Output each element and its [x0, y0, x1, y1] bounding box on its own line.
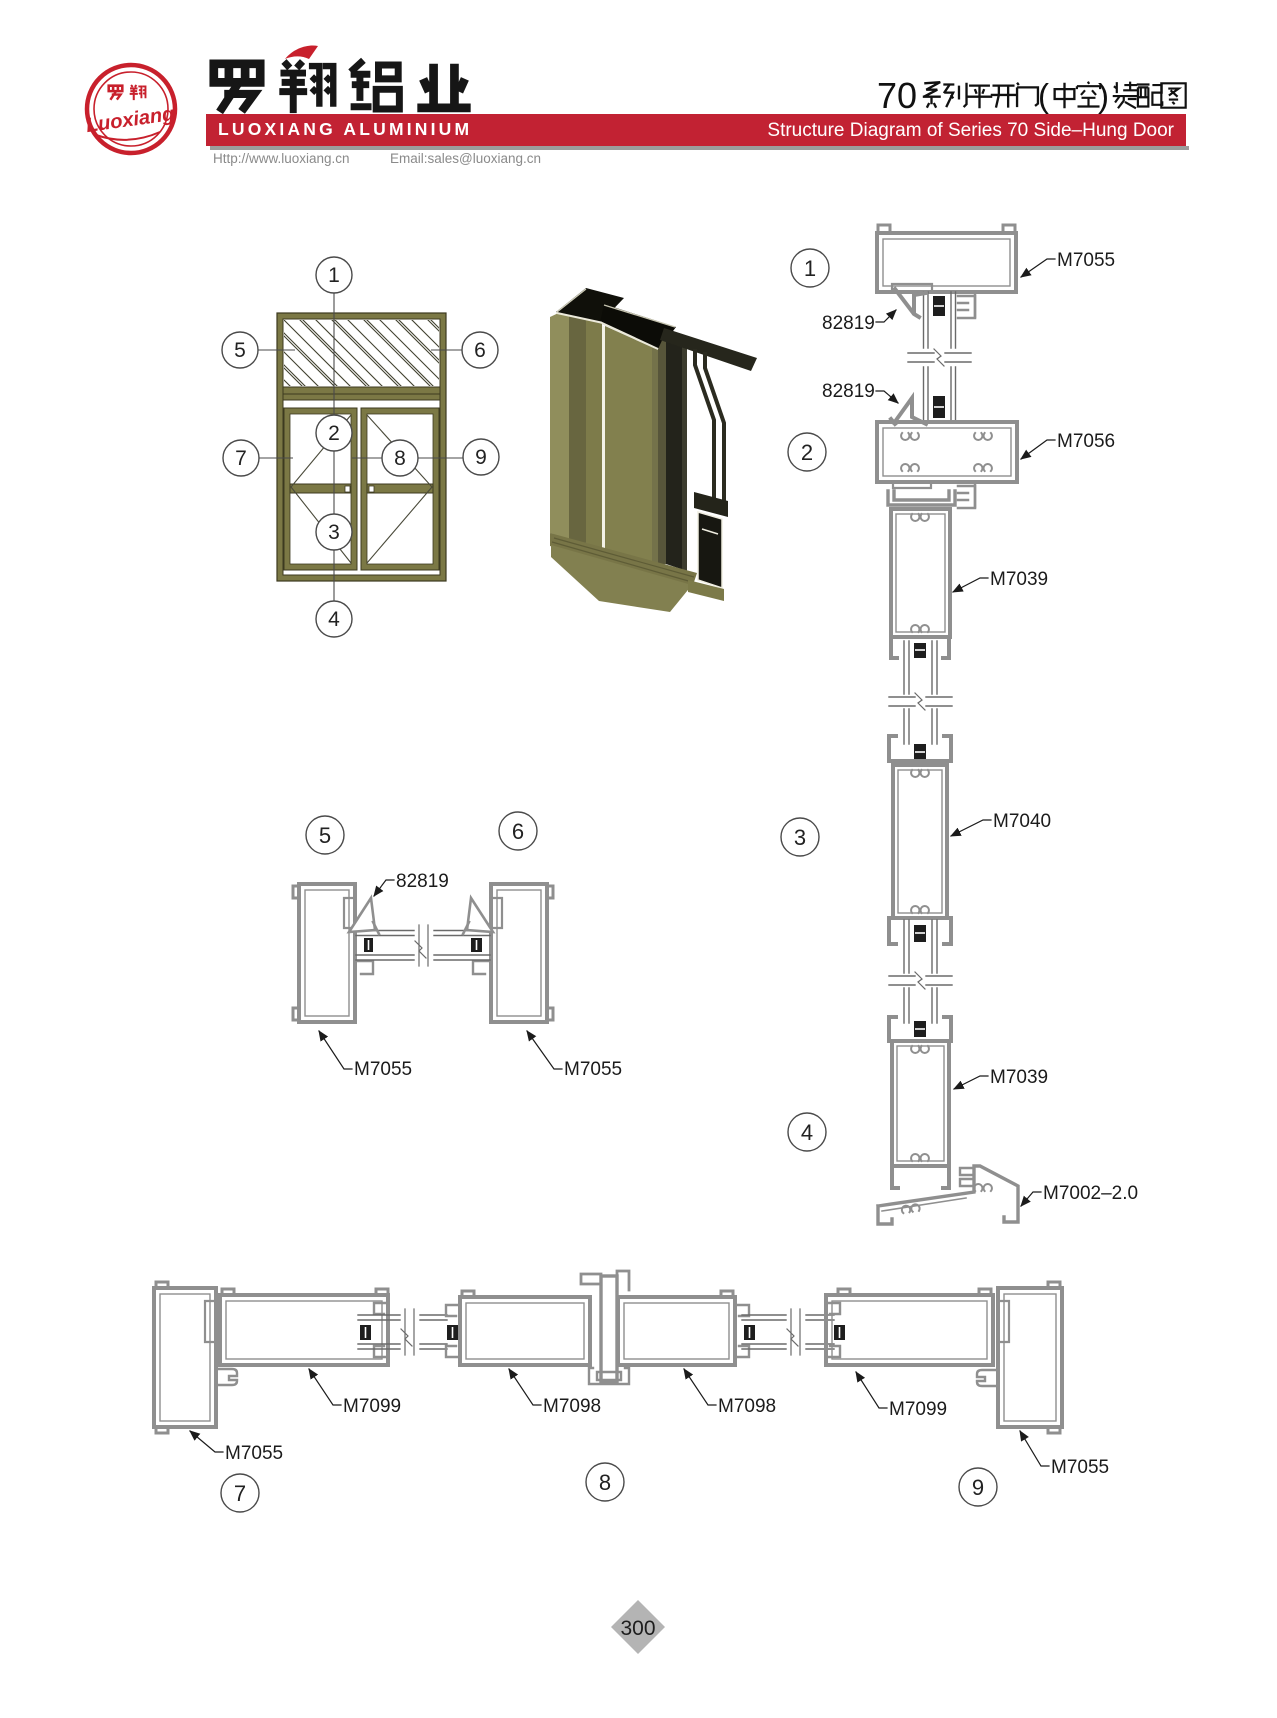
- svg-text:70: 70: [877, 75, 917, 116]
- svg-text:M7055: M7055: [1057, 250, 1115, 271]
- svg-text:82819: 82819: [396, 871, 449, 892]
- svg-text:1: 1: [804, 256, 816, 281]
- svg-text:M7098: M7098: [543, 1396, 601, 1417]
- svg-text:2: 2: [328, 422, 340, 445]
- svg-text:82819: 82819: [822, 313, 875, 334]
- svg-text:8: 8: [599, 1470, 611, 1495]
- svg-text:82819: 82819: [822, 381, 875, 402]
- svg-text:Luoxiang: Luoxiang: [85, 103, 176, 137]
- svg-text:(: (: [1038, 77, 1049, 114]
- svg-text:M7055: M7055: [564, 1059, 622, 1080]
- svg-text:6: 6: [512, 819, 524, 844]
- svg-text:Email:sales@luoxiang.cn: Email:sales@luoxiang.cn: [390, 151, 541, 166]
- svg-text:M7039: M7039: [990, 569, 1048, 590]
- svg-text:8: 8: [394, 447, 406, 470]
- svg-text:300: 300: [620, 1617, 655, 1640]
- svg-text:M7055: M7055: [354, 1059, 412, 1080]
- svg-text:3: 3: [794, 825, 806, 850]
- svg-text:): ): [1098, 77, 1109, 114]
- svg-text:M7055: M7055: [1051, 1457, 1109, 1478]
- svg-text:M7040: M7040: [993, 811, 1051, 832]
- svg-text:M7099: M7099: [889, 1399, 947, 1420]
- svg-text:M7039: M7039: [990, 1067, 1048, 1088]
- svg-text:7: 7: [235, 447, 247, 470]
- svg-text:LUOXIANG ALUMINIUM: LUOXIANG ALUMINIUM: [218, 119, 472, 139]
- svg-text:Http://www.luoxiang.cn: Http://www.luoxiang.cn: [213, 151, 350, 166]
- svg-text:5: 5: [319, 823, 331, 848]
- svg-text:5: 5: [234, 339, 246, 362]
- svg-text:2: 2: [801, 440, 813, 465]
- svg-text:M7002–2.0: M7002–2.0: [1043, 1183, 1138, 1204]
- svg-text:M7056: M7056: [1057, 431, 1115, 452]
- svg-text:M7098: M7098: [718, 1396, 776, 1417]
- svg-text:3: 3: [328, 521, 340, 544]
- svg-text:7: 7: [234, 1481, 246, 1506]
- svg-text:9: 9: [972, 1475, 984, 1500]
- svg-text:M7099: M7099: [343, 1396, 401, 1417]
- svg-text:1: 1: [328, 264, 340, 287]
- svg-text:Structure Diagram of Series 70: Structure Diagram of Series 70 Side–Hung…: [767, 120, 1174, 141]
- svg-text:4: 4: [328, 608, 340, 631]
- svg-text:4: 4: [801, 1120, 813, 1145]
- svg-text:9: 9: [475, 446, 487, 469]
- svg-text:6: 6: [474, 339, 486, 362]
- svg-text:M7055: M7055: [225, 1443, 283, 1464]
